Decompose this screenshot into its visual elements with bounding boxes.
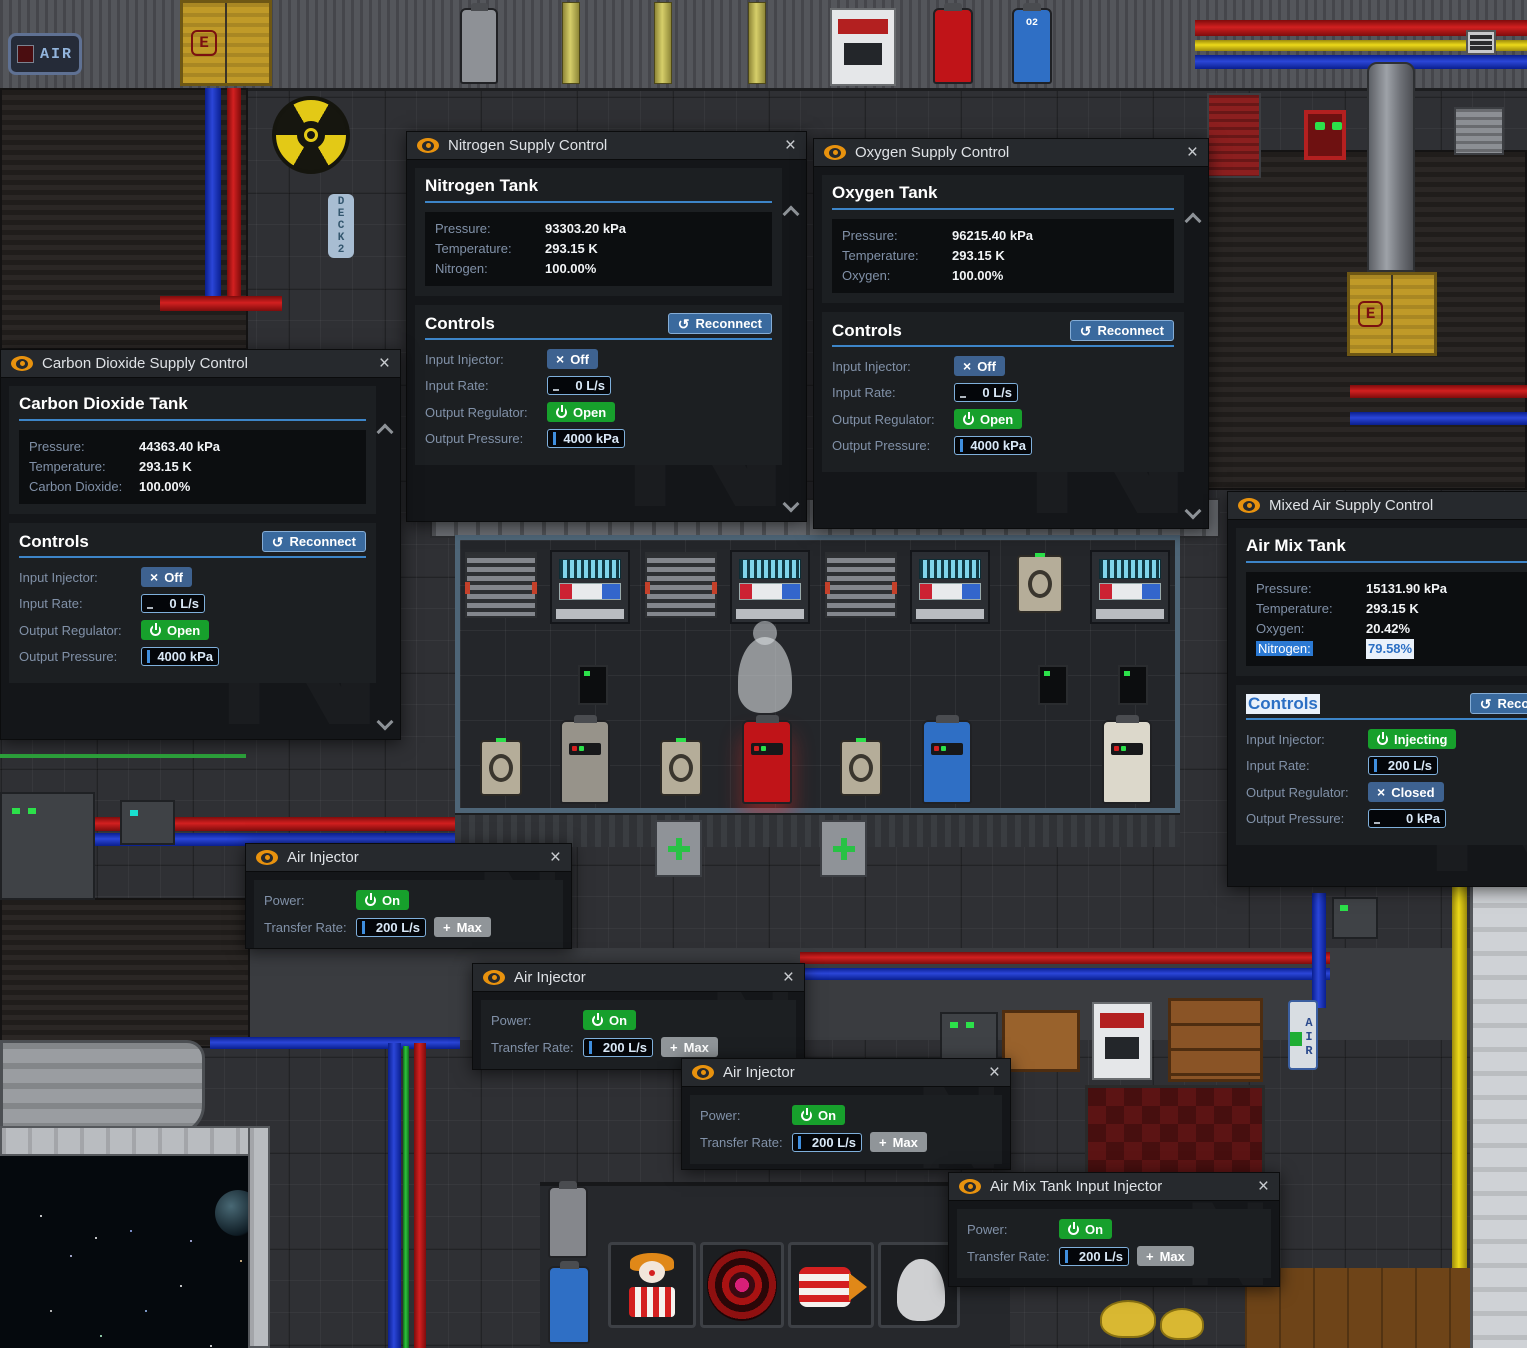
text-cursor <box>553 432 556 445</box>
blue-canister[interactable] <box>922 720 972 804</box>
close-icon[interactable]: × <box>783 968 794 987</box>
blue-pipe <box>800 968 1330 980</box>
tank-stats: Pressure:15131.90 kPa Temperature:293.15… <box>1246 572 1527 666</box>
blue-canister[interactable]: O2 <box>1012 8 1052 84</box>
control-row: Input Injector: ×Off <box>832 356 1174 376</box>
gray-canister[interactable] <box>560 720 610 804</box>
machine <box>1207 93 1261 178</box>
plus-icon: + <box>1146 1249 1154 1264</box>
wall-unit[interactable] <box>655 820 702 877</box>
right-column <box>1470 855 1527 1348</box>
power-icon <box>365 895 376 906</box>
transfer-rate-field[interactable]: 200 L/s <box>583 1038 653 1057</box>
tank-title: Air Mix Tank <box>1246 536 1527 563</box>
x-icon: × <box>150 570 158 584</box>
reconnect-button[interactable]: ↺Reconnect <box>668 313 772 334</box>
control-row: Power: On <box>264 890 553 910</box>
control-row: Power: On <box>967 1219 1261 1239</box>
scroll-up-icon[interactable] <box>1185 213 1202 230</box>
window-title: Air Injector <box>287 849 541 866</box>
white-canister[interactable] <box>1102 720 1152 804</box>
window-titlebar[interactable]: Carbon Dioxide Supply Control × <box>1 350 400 378</box>
floor-hatch <box>455 813 1180 847</box>
output-regulator-toggle[interactable]: Open <box>547 402 615 422</box>
input-rate-field[interactable]: 0 L/s <box>547 376 611 395</box>
max-button[interactable]: +Max <box>434 917 491 937</box>
gray-canister[interactable] <box>548 1186 588 1258</box>
max-button[interactable]: +Max <box>870 1132 927 1152</box>
controls-section: Controls ↺Reconnect Input Injector: ×Off… <box>822 312 1184 472</box>
controls-section: Controls ↺Reconnect Input Injector: ×Off… <box>415 305 782 465</box>
window-body: N Nitrogen Tank Pressure:93303.20 kPa Te… <box>407 160 806 521</box>
power-icon <box>801 1110 812 1121</box>
stat-row-selected: Nitrogen:79.58% <box>1256 639 1527 659</box>
blue-pipe <box>1195 55 1527 69</box>
plus-icon: + <box>670 1040 678 1055</box>
control-row: Input Rate: 0 L/s <box>19 594 366 613</box>
text-cursor <box>147 650 150 663</box>
plus-icon: + <box>443 920 451 935</box>
wall-tank[interactable] <box>1017 555 1063 613</box>
red-pipe <box>160 296 282 311</box>
pillar <box>562 2 580 84</box>
close-icon[interactable]: × <box>379 354 390 373</box>
red-pipe <box>227 88 241 306</box>
injector-section: Power: On Transfer Rate: 200 L/s +Max <box>254 880 563 948</box>
yellow-door[interactable]: E <box>180 0 272 86</box>
tank-room <box>455 535 1180 813</box>
stat-row: Oxygen:100.00% <box>842 266 1164 286</box>
control-row: Output Regulator: Open <box>19 620 366 640</box>
stat-row: Carbon Dioxide:100.00% <box>29 477 356 497</box>
tank-stats: Pressure:44363.40 kPa Temperature:293.15… <box>19 430 366 504</box>
controls-title: Controls <box>1246 694 1320 714</box>
close-icon[interactable]: × <box>989 1063 1000 1082</box>
filtration-device[interactable] <box>730 550 810 624</box>
window-titlebar[interactable]: Air Injector × <box>682 1059 1010 1087</box>
window-body: N Air Mix Tank Pressure:15131.90 kPa Tem… <box>1228 520 1527 886</box>
window-title: Air Injector <box>723 1064 980 1081</box>
text-cursor <box>1374 759 1377 772</box>
air-sign-right: AIR <box>1288 1000 1318 1070</box>
yellow-item[interactable] <box>1160 1308 1204 1340</box>
tank-stats: Pressure:96215.40 kPa Temperature:293.15… <box>832 219 1174 293</box>
keypad[interactable] <box>578 665 608 705</box>
power-toggle[interactable]: On <box>583 1010 636 1030</box>
transfer-rate-field[interactable]: 200 L/s <box>792 1133 862 1152</box>
pillar <box>654 2 672 84</box>
air-sign-label: AIR <box>40 46 73 63</box>
input-rate-field[interactable]: 0 L/s <box>141 594 205 613</box>
controls-title: Controls <box>425 314 495 334</box>
stat-row: Temperature:293.15 K <box>435 239 762 259</box>
eye-icon <box>256 850 278 865</box>
output-pressure-field[interactable]: 0 kPa <box>1368 809 1446 828</box>
sign-lamp <box>17 45 34 63</box>
pillar <box>748 2 766 84</box>
vending-machine[interactable] <box>1092 1002 1152 1080</box>
red-pipe <box>800 952 1330 964</box>
close-icon[interactable]: × <box>550 848 561 867</box>
output-regulator-toggle[interactable]: Open <box>141 620 209 640</box>
window-carbon-dioxide-supply-control: Carbon Dioxide Supply Control × N Carbon… <box>0 349 401 740</box>
x-icon: × <box>963 359 971 373</box>
control-row: Output Regulator: Open <box>425 402 772 422</box>
blue-canister[interactable] <box>548 1266 590 1344</box>
reconnect-icon: ↺ <box>1480 697 1492 711</box>
close-icon[interactable]: × <box>1258 1177 1269 1196</box>
stat-row: Temperature:293.15 K <box>842 246 1164 266</box>
window-titlebar[interactable]: Oxygen Supply Control × <box>814 139 1208 167</box>
control-row: Input Rate: 0 L/s <box>425 376 772 395</box>
reconnect-icon: ↺ <box>678 317 690 331</box>
power-icon <box>556 407 567 418</box>
x-icon: × <box>556 352 564 366</box>
controls-title: Controls <box>832 321 902 341</box>
window-titlebar[interactable]: Nitrogen Supply Control × <box>407 132 806 160</box>
controls-section: Controls ↺Reconnect Input Injector: Inje… <box>1236 685 1527 845</box>
console-machine[interactable] <box>120 800 175 845</box>
control-row: Output Pressure: 0 kPa <box>1246 809 1527 828</box>
red-pipe <box>414 1043 426 1348</box>
green-wire <box>0 754 246 758</box>
output-pressure-field[interactable]: 4000 kPa <box>547 429 625 448</box>
spiral-disc[interactable] <box>700 1242 784 1328</box>
control-row: Transfer Rate: 200 L/s +Max <box>264 917 553 937</box>
control-row: Transfer Rate: 200 L/s +Max <box>700 1132 992 1152</box>
station-hull <box>248 1126 270 1348</box>
power-icon <box>592 1015 603 1026</box>
filtration-device[interactable] <box>550 550 630 624</box>
red-canister[interactable] <box>933 8 973 84</box>
window-title: Oxygen Supply Control <box>855 144 1178 161</box>
stat-row: Pressure:15131.90 kPa <box>1256 579 1527 599</box>
window-title: Air Injector <box>514 969 774 986</box>
reconnect-button[interactable]: ↺Reconnect <box>1070 320 1174 341</box>
eye-icon <box>959 1179 981 1194</box>
air-sign-right-label: AIR <box>1302 1016 1316 1058</box>
ship-hull <box>0 1040 205 1135</box>
ghost-sprite <box>738 637 792 713</box>
eye-icon <box>692 1065 714 1080</box>
power-toggle[interactable]: On <box>1059 1219 1112 1239</box>
scroll-down-icon[interactable] <box>1185 503 1202 520</box>
keypad[interactable] <box>1118 665 1148 705</box>
reconnect-button[interactable]: ↺Reconnect <box>262 531 366 552</box>
close-icon[interactable]: × <box>1187 143 1198 162</box>
input-rate-field[interactable]: 0 L/s <box>954 383 1018 402</box>
controls-section: Controls ↺Reconnect Input Injector: ×Off… <box>9 523 376 683</box>
stat-row: Nitrogen:100.00% <box>435 259 762 279</box>
output-pressure-field[interactable]: 4000 kPa <box>141 647 219 666</box>
window-body: N Power: On Transfer Rate: 200 L/s +Max <box>949 1201 1279 1286</box>
window-title: Mixed Air Supply Control <box>1269 497 1527 514</box>
stat-row: Pressure:44363.40 kPa <box>29 437 356 457</box>
reconnect-icon: ↺ <box>272 535 284 549</box>
window-air-injector-3: Air Injector × N Power: On Transfer Rate… <box>681 1058 1011 1170</box>
eye-icon <box>417 138 439 153</box>
plus-icon: + <box>879 1135 887 1150</box>
controls-title: Controls <box>19 532 89 552</box>
clown-doll[interactable] <box>608 1242 696 1328</box>
power-toggle[interactable]: On <box>356 890 409 910</box>
tank-title: Oxygen Tank <box>832 183 1174 210</box>
keypad[interactable] <box>1038 665 1068 705</box>
text-cursor <box>589 1041 592 1054</box>
wooden-desk[interactable] <box>1002 1010 1080 1072</box>
window-air-mix-tank-input-injector: Air Mix Tank Input Injector × N Power: O… <box>948 1172 1280 1287</box>
machine <box>830 8 896 86</box>
power-icon <box>963 414 974 425</box>
scroll-up-icon[interactable] <box>377 424 394 441</box>
gas-canister[interactable] <box>460 8 498 84</box>
scroll-down-icon[interactable] <box>377 714 394 731</box>
deck2-sign: DECK2 <box>328 194 354 258</box>
eye-icon <box>1238 498 1260 513</box>
window-titlebar[interactable]: Mixed Air Supply Control × <box>1228 492 1527 520</box>
red-canister[interactable] <box>742 720 792 804</box>
power-toggle[interactable]: On <box>792 1105 845 1125</box>
wooden-dresser[interactable] <box>1168 998 1263 1082</box>
station-hull <box>0 1126 270 1156</box>
stat-row: Temperature:293.15 K <box>29 457 356 477</box>
x-icon: × <box>1377 785 1385 799</box>
control-row: Transfer Rate: 200 L/s +Max <box>491 1037 786 1057</box>
input-injector-toggle[interactable]: ×Off <box>141 567 192 587</box>
transfer-rate-field[interactable]: 200 L/s <box>356 918 426 937</box>
wall-unit[interactable] <box>820 820 867 877</box>
window-title: Carbon Dioxide Supply Control <box>42 355 370 372</box>
control-row: Output Pressure: 4000 kPa <box>425 429 772 448</box>
radiation-icon <box>272 96 350 174</box>
window-nitrogen-supply-control: Nitrogen Supply Control × N Nitrogen Tan… <box>406 131 807 522</box>
text-cursor <box>553 389 559 391</box>
wall-grille <box>645 552 717 618</box>
wall-tank[interactable] <box>840 740 882 796</box>
wall-tank[interactable] <box>660 740 702 796</box>
eye-icon <box>483 970 505 985</box>
control-row: Output Regulator: ×Closed <box>1246 782 1527 802</box>
window-titlebar[interactable]: Air Injector × <box>246 844 571 872</box>
control-row: Input Injector: ×Off <box>19 567 366 587</box>
yellow-item[interactable] <box>1100 1300 1156 1338</box>
machine <box>1454 107 1504 155</box>
wall-panel <box>0 898 250 1048</box>
max-button[interactable]: +Max <box>1137 1246 1194 1266</box>
red-device <box>1304 110 1346 160</box>
control-row: Input Injector: Injecting <box>1246 729 1527 749</box>
tank-title: Carbon Dioxide Tank <box>19 394 366 421</box>
scroll-down-icon[interactable] <box>783 496 800 513</box>
text-cursor <box>798 1136 801 1149</box>
chimney-pipe <box>1367 62 1415 272</box>
blue-pipe <box>1312 893 1326 1008</box>
output-regulator-toggle[interactable]: Open <box>954 409 1022 429</box>
console-machine[interactable] <box>0 792 95 900</box>
window-air-injector-1: Air Injector × N Power: On Transfer Rate… <box>245 843 572 949</box>
lying-clown-doll[interactable] <box>788 1242 874 1328</box>
wall-grille <box>465 552 537 618</box>
text-cursor <box>147 607 153 609</box>
tank-section: Oxygen Tank Pressure:96215.40 kPa Temper… <box>822 175 1184 303</box>
window-mixed-air-supply-control: Mixed Air Supply Control × N Air Mix Tan… <box>1227 491 1527 887</box>
door-label: E <box>1358 301 1384 327</box>
console-machine[interactable] <box>1332 897 1378 939</box>
input-injector-toggle[interactable]: ×Off <box>954 356 1005 376</box>
text-cursor <box>960 439 963 452</box>
game-screen: AIR DECK2 AIR E E O2 <box>0 0 1527 1348</box>
blue-pipe <box>1350 412 1527 425</box>
stat-row: Pressure:93303.20 kPa <box>435 219 762 239</box>
output-pressure-field[interactable]: 4000 kPa <box>954 436 1032 455</box>
stat-row: Pressure:96215.40 kPa <box>842 226 1164 246</box>
window-body: N Power: On Transfer Rate: 200 L/s +Max <box>246 872 571 948</box>
control-row: Output Pressure: 4000 kPa <box>832 436 1174 455</box>
green-pipe <box>403 1046 409 1348</box>
tank-section: Air Mix Tank Pressure:15131.90 kPa Tempe… <box>1236 528 1527 676</box>
control-row: Input Rate: 200 L/s <box>1246 756 1527 775</box>
reconnect-icon: ↺ <box>1080 324 1092 338</box>
injector-section: Power: On Transfer Rate: 200 L/s +Max <box>690 1095 1002 1164</box>
transfer-rate-field[interactable]: 200 L/s <box>1059 1247 1129 1266</box>
control-row: Output Pressure: 4000 kPa <box>19 647 366 666</box>
blue-pipe <box>205 88 221 303</box>
wall-tank[interactable] <box>480 740 522 796</box>
power-icon <box>150 625 161 636</box>
wall-vent-icon <box>1466 30 1496 55</box>
reconnect-button[interactable]: ↺Reconnect <box>1470 693 1527 714</box>
window-body: N Oxygen Tank Pressure:96215.40 kPa Temp… <box>814 167 1208 528</box>
stat-row: Oxygen:20.42% <box>1256 619 1527 639</box>
tank-title: Nitrogen Tank <box>425 176 772 203</box>
power-icon <box>1377 734 1388 745</box>
canister-label: O2 <box>1014 18 1050 29</box>
control-row: Power: On <box>700 1105 992 1125</box>
control-row: Input Injector: ×Off <box>425 349 772 369</box>
window-title: Air Mix Tank Input Injector <box>990 1178 1249 1195</box>
red-pipe <box>1350 385 1527 398</box>
control-row: Output Regulator: Open <box>832 409 1174 429</box>
eye-icon <box>11 356 33 371</box>
input-injector-toggle[interactable]: Injecting <box>1368 729 1456 749</box>
max-button[interactable]: +Max <box>661 1037 718 1057</box>
door-label: E <box>191 30 217 56</box>
window-body: N Power: On Transfer Rate: 200 L/s +Max <box>682 1087 1010 1169</box>
tank-stats: Pressure:93303.20 kPa Temperature:293.15… <box>425 212 772 286</box>
power-icon <box>1068 1224 1079 1235</box>
window-body: N Carbon Dioxide Tank Pressure:44363.40 … <box>1 378 400 739</box>
output-regulator-toggle[interactable]: ×Closed <box>1368 782 1444 802</box>
stat-row: Temperature:293.15 K <box>1256 599 1527 619</box>
window-air-injector-2: Air Injector × N Power: On Transfer Rate… <box>472 963 805 1070</box>
control-row: Power: On <box>491 1010 786 1030</box>
yellow-door[interactable]: E <box>1347 272 1437 356</box>
tank-section: Carbon Dioxide Tank Pressure:44363.40 kP… <box>9 386 376 514</box>
wall-grille <box>825 552 897 618</box>
control-row: Transfer Rate: 200 L/s +Max <box>967 1246 1261 1266</box>
text-cursor <box>1374 822 1380 824</box>
tank-section: Nitrogen Tank Pressure:93303.20 kPa Temp… <box>415 168 782 296</box>
scroll-up-icon[interactable] <box>783 206 800 223</box>
window-title: Nitrogen Supply Control <box>448 137 776 154</box>
text-cursor <box>960 396 966 398</box>
space-field <box>0 1155 268 1348</box>
window-oxygen-supply-control: Oxygen Supply Control × N Oxygen Tank Pr… <box>813 138 1209 529</box>
filtration-device[interactable] <box>910 550 990 624</box>
blue-pipe <box>388 1043 401 1348</box>
filtration-device[interactable] <box>1090 550 1170 624</box>
text-cursor <box>1065 1250 1068 1263</box>
input-rate-field[interactable]: 200 L/s <box>1368 756 1438 775</box>
air-sign: AIR <box>8 33 82 75</box>
window-titlebar[interactable]: Air Injector × <box>473 964 804 992</box>
injector-section: Power: On Transfer Rate: 200 L/s +Max <box>957 1209 1271 1278</box>
eye-icon <box>824 145 846 160</box>
control-row: Input Rate: 0 L/s <box>832 383 1174 402</box>
close-icon[interactable]: × <box>785 136 796 155</box>
window-titlebar[interactable]: Air Mix Tank Input Injector × <box>949 1173 1279 1201</box>
input-injector-toggle[interactable]: ×Off <box>547 349 598 369</box>
text-cursor <box>362 921 365 934</box>
